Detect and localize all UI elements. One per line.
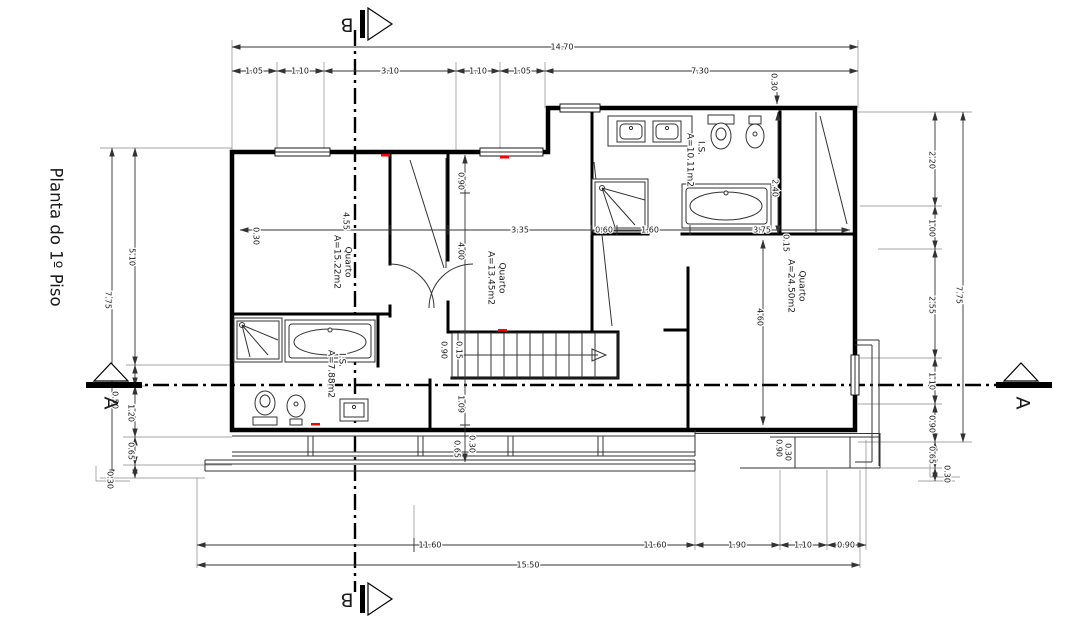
bathtub <box>682 184 771 228</box>
room-area: A=10.11m2 <box>685 133 695 187</box>
dim-top: 1.10 <box>469 67 487 76</box>
dim-interior: 2.40 <box>771 179 780 197</box>
room-area: A=24.50m2 <box>786 259 796 313</box>
dim-bottom: 0.90 <box>837 541 855 550</box>
stairs <box>452 333 618 378</box>
shower <box>234 318 282 362</box>
dim-interior: 0.30 <box>468 435 477 453</box>
bidet <box>287 395 305 425</box>
dim-right: 1.10 <box>928 372 937 390</box>
dim-interior: 0.60 <box>595 226 613 235</box>
dim-bottom-overall: 15.50 <box>517 561 540 570</box>
toilet <box>253 391 277 425</box>
dim-right: 0.90 <box>928 415 937 433</box>
section-letter-a: A <box>100 397 122 410</box>
section-letter-b: B <box>340 14 353 36</box>
dim-wall-thickness: 0.30 <box>770 73 779 91</box>
dim-interior: 4.55 <box>342 212 351 230</box>
dim-left: 1.20 <box>127 404 136 422</box>
room-area: A=13.45m2 <box>486 251 496 305</box>
room-name: Quarto <box>497 262 507 294</box>
dim-left: 0.30 <box>106 471 115 489</box>
dim-bottom: 1.10 <box>794 541 812 550</box>
room-name: Quarto <box>343 246 353 278</box>
dim-interior: 0.90 <box>775 439 784 457</box>
dim-interior: 1.09 <box>457 395 466 413</box>
dim-top: 1.05 <box>513 67 531 76</box>
section-marker-b-top: B <box>340 8 392 40</box>
extension-lines <box>96 40 972 568</box>
floor-plan-drawing: 14.70 1.05 1.10 3.10 1.10 1.05 7.30 0.30… <box>0 0 1077 633</box>
closet-door <box>820 116 847 224</box>
dim-interior: 1.60 <box>641 226 659 235</box>
dim-interior: 0.15 <box>782 234 791 252</box>
room-area: A=15.22m2 <box>332 235 342 289</box>
dim-right: 0.65 <box>928 446 937 464</box>
bidet <box>746 116 764 148</box>
dim-bottom: 1.90 <box>728 541 746 550</box>
floor-plan-page: 14.70 1.05 1.10 3.10 1.10 1.05 7.30 0.30… <box>0 0 1077 633</box>
dim-interior: 0.15 <box>455 341 464 359</box>
dim-interior: 4.00 <box>457 242 466 260</box>
section-lines <box>95 30 1048 592</box>
sink <box>340 399 368 421</box>
dim-interior: 0.90 <box>440 341 449 359</box>
section-letter-a: A <box>1012 397 1034 410</box>
room-name: I.S. <box>696 141 706 155</box>
dim-interior: 0.90 <box>457 172 466 190</box>
dim-bottom: 11.60 <box>419 541 442 550</box>
dim-interior: 0.65 <box>453 440 462 458</box>
section-marker-a-left: A <box>86 363 142 410</box>
dim-right: 1.00 <box>928 219 937 237</box>
room-name: Quarto <box>797 270 807 302</box>
dim-interior: 4.60 <box>756 308 765 326</box>
dim-right-overall: 7.75 <box>955 286 964 304</box>
dim-right: 2.55 <box>928 296 937 314</box>
dim-left: 0.65 <box>127 442 136 460</box>
door-arc <box>390 264 434 308</box>
dim-bottom: 11.60 <box>644 541 667 550</box>
section-marker-a-right: A <box>996 363 1052 410</box>
dim-top: 1.10 <box>291 67 309 76</box>
section-marker-b-bottom: B <box>340 583 392 615</box>
dim-interior: 3.75 <box>753 226 771 235</box>
walls <box>232 108 879 466</box>
dim-interior: 0.30 <box>784 443 793 461</box>
dim-top: 7.30 <box>691 67 709 76</box>
room-labels: Quarto A=15.22m2 Quarto A=13.45m2 Quarto… <box>326 133 807 398</box>
toilet <box>708 115 734 149</box>
dim-top-overall: 14.70 <box>551 43 574 52</box>
dim-left-overall: 7.75 <box>104 291 113 309</box>
shower <box>592 179 648 231</box>
door-arc <box>429 264 473 308</box>
dimension-lines <box>112 47 963 565</box>
dim-right: 2.20 <box>928 151 937 169</box>
dim-left: 5.10 <box>128 248 137 266</box>
dim-top: 1.05 <box>245 67 263 76</box>
room-area: A=7.88m2 <box>326 350 336 398</box>
dim-interior: 3.35 <box>511 226 529 235</box>
room-name: I.S. <box>337 353 347 367</box>
dim-right: 0.30 <box>943 465 952 483</box>
dim-top: 3.10 <box>381 67 399 76</box>
closet-door <box>410 160 444 268</box>
drawing-title: Planta do 1º Piso <box>47 167 66 306</box>
section-letter-b: B <box>340 589 353 611</box>
dim-interior: 0.30 <box>252 227 261 245</box>
